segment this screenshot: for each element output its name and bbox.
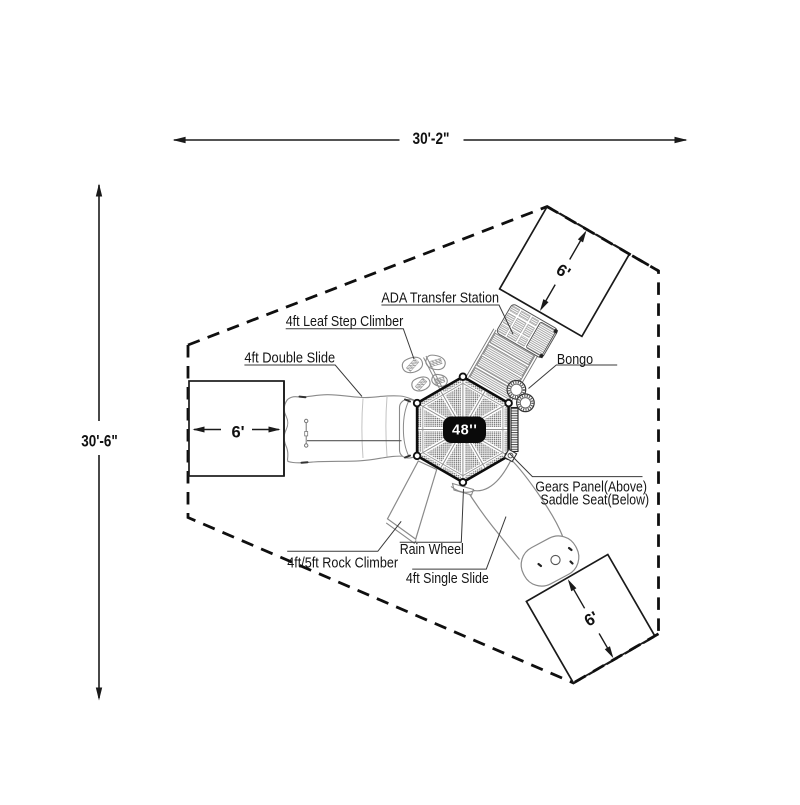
svg-text:4ft Leaf Step Climber: 4ft Leaf Step Climber <box>286 314 404 330</box>
svg-text:48'': 48'' <box>452 423 477 439</box>
svg-text:30'-2": 30'-2" <box>413 129 450 148</box>
svg-text:Bongo: Bongo <box>557 352 593 368</box>
svg-text:30'-6": 30'-6" <box>81 431 118 450</box>
svg-text:Rain Wheel: Rain Wheel <box>400 542 464 558</box>
svg-text:ADA Transfer Station: ADA Transfer Station <box>381 291 499 307</box>
svg-text:Saddle Seat(Below): Saddle Seat(Below) <box>541 493 650 509</box>
svg-text:4ft Single Slide: 4ft Single Slide <box>406 571 489 587</box>
svg-text:4ft/5ft Rock Climber: 4ft/5ft Rock Climber <box>287 556 398 572</box>
svg-text:4ft Double Slide: 4ft Double Slide <box>244 351 335 367</box>
svg-text:6': 6' <box>231 423 244 441</box>
